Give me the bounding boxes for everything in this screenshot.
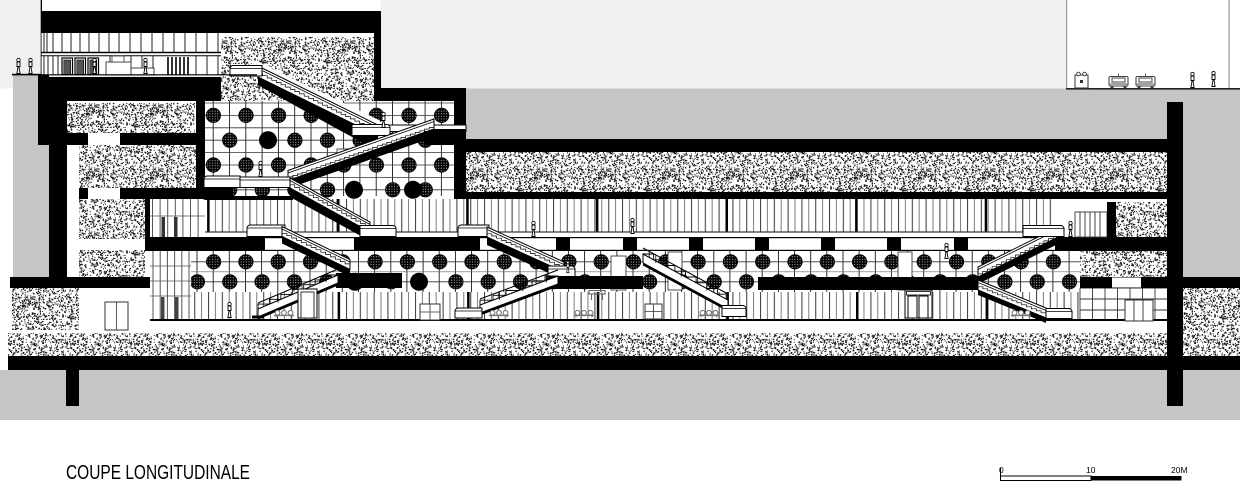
svg-text:10: 10 [1086, 465, 1096, 475]
svg-text:COUPE LONGITUDINALE: COUPE LONGITUDINALE [66, 461, 250, 484]
svg-text:20M: 20M [1171, 465, 1188, 475]
svg-text:0: 0 [999, 465, 1004, 475]
